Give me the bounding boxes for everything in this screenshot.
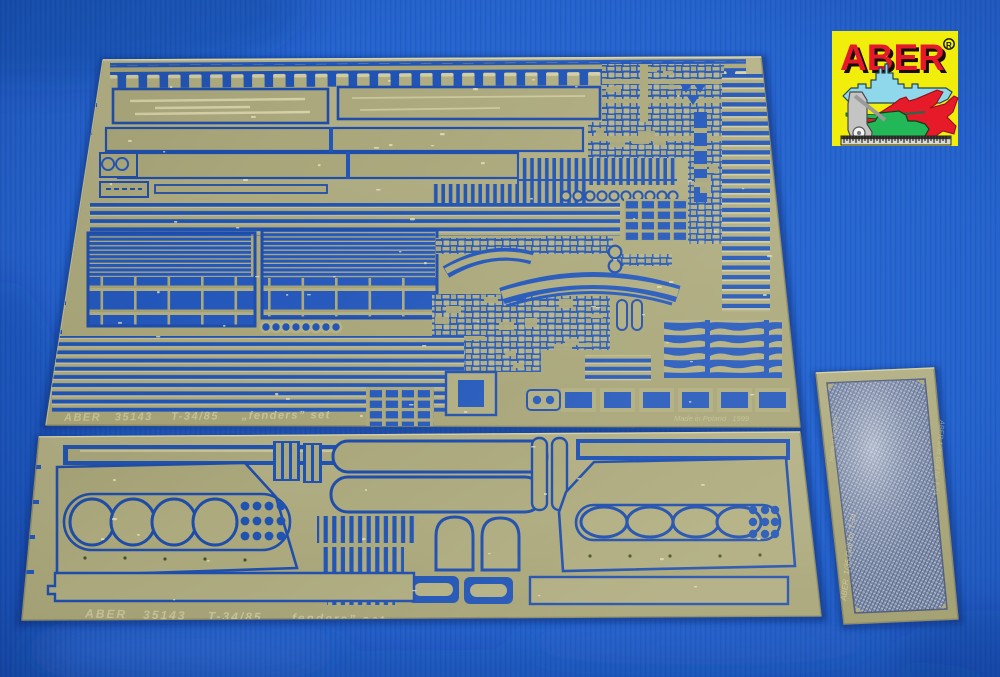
svg-text:ABER: ABER bbox=[840, 37, 945, 78]
svg-text:R: R bbox=[946, 41, 952, 50]
